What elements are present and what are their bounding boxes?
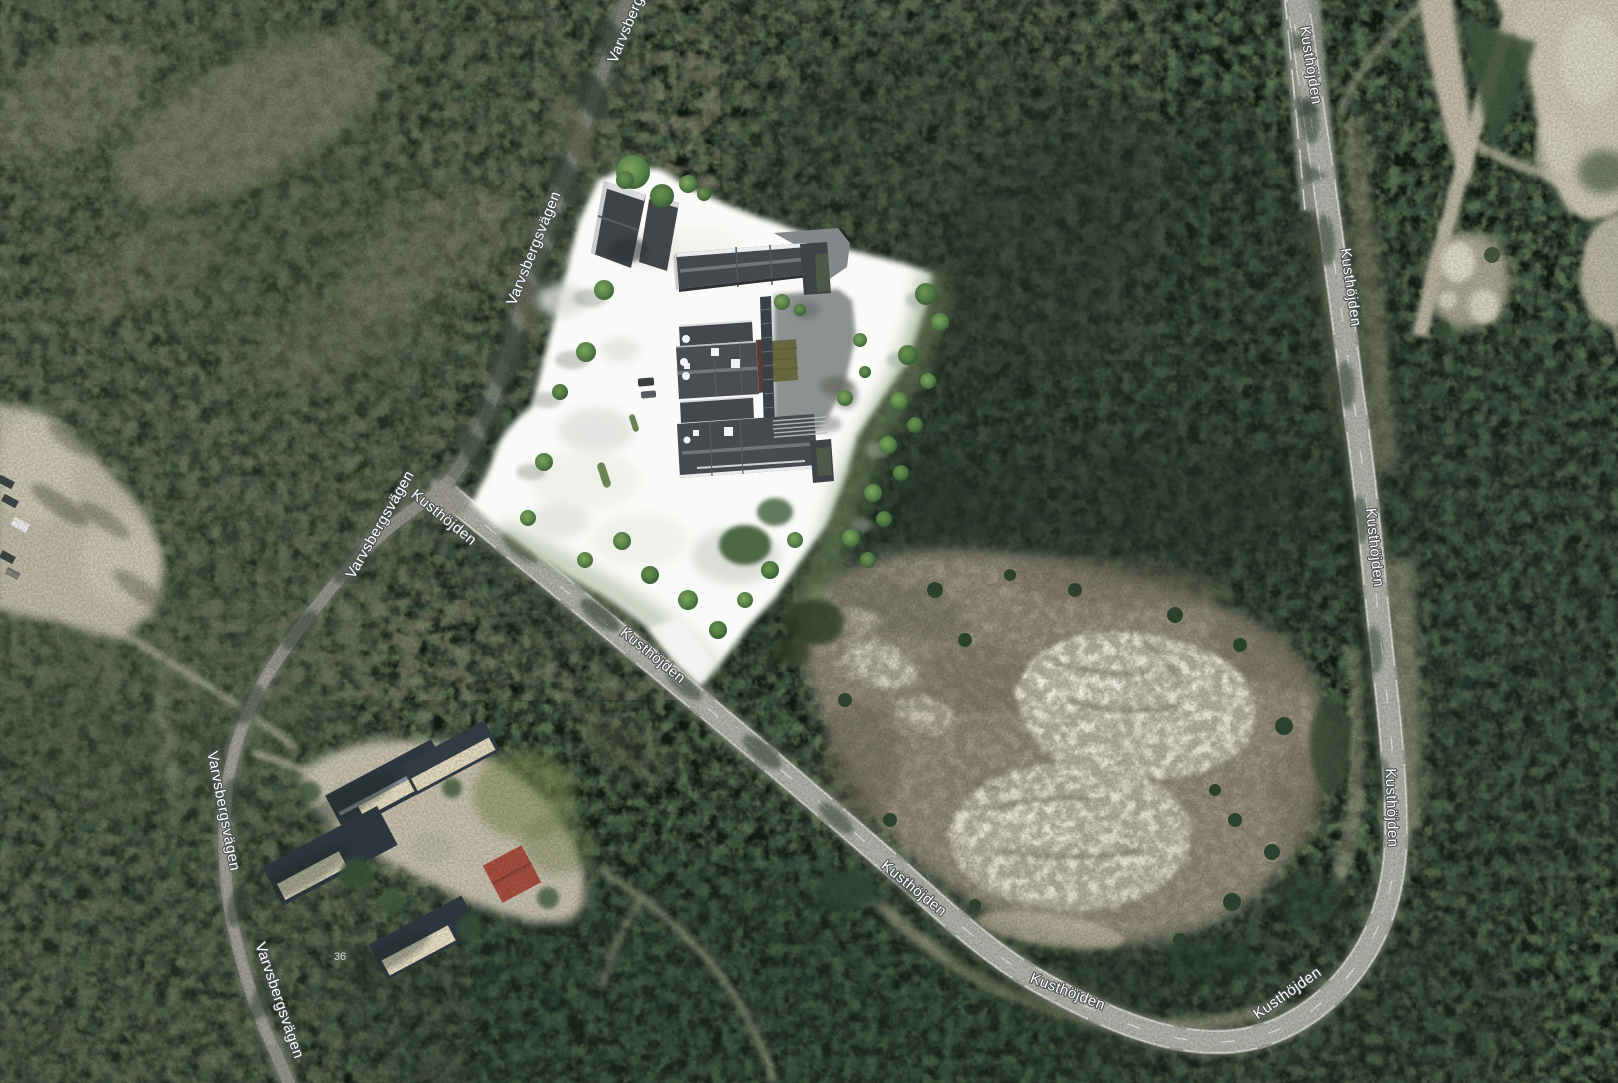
svg-text:Kusthöjden: Kusthöjden [1382,768,1402,848]
svg-text:36: 36 [334,951,346,963]
